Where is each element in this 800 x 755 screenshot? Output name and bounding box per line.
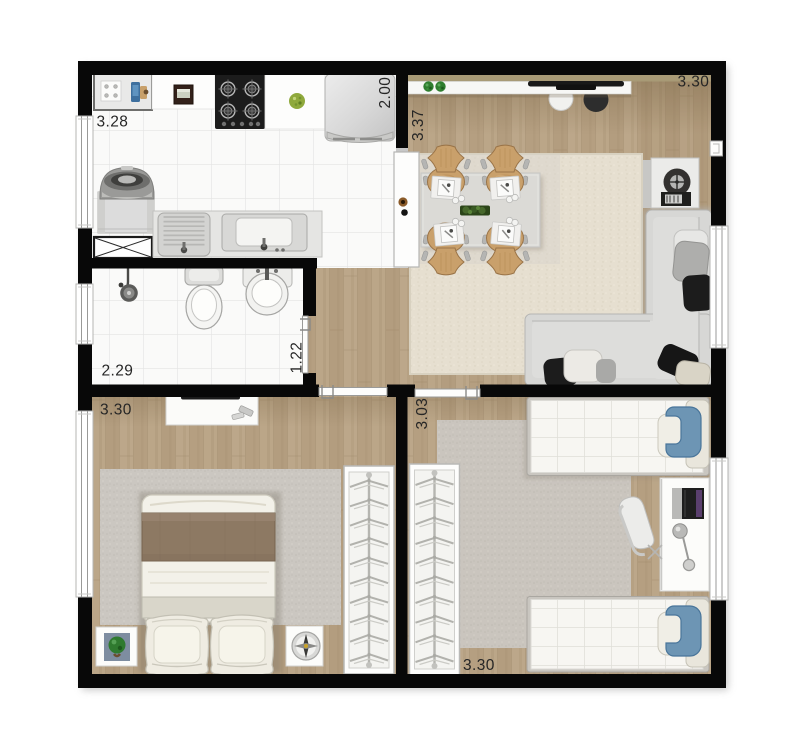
svg-text:3.03: 3.03 bbox=[414, 398, 431, 430]
svg-text:3.30: 3.30 bbox=[100, 402, 132, 419]
svg-text:2.00: 2.00 bbox=[377, 77, 394, 109]
svg-text:1.22: 1.22 bbox=[289, 342, 306, 374]
svg-text:3.28: 3.28 bbox=[97, 114, 129, 131]
svg-text:3.30: 3.30 bbox=[678, 74, 710, 91]
svg-text:3.37: 3.37 bbox=[410, 109, 427, 141]
svg-text:3.30: 3.30 bbox=[463, 657, 495, 674]
svg-text:2.29: 2.29 bbox=[102, 363, 134, 380]
